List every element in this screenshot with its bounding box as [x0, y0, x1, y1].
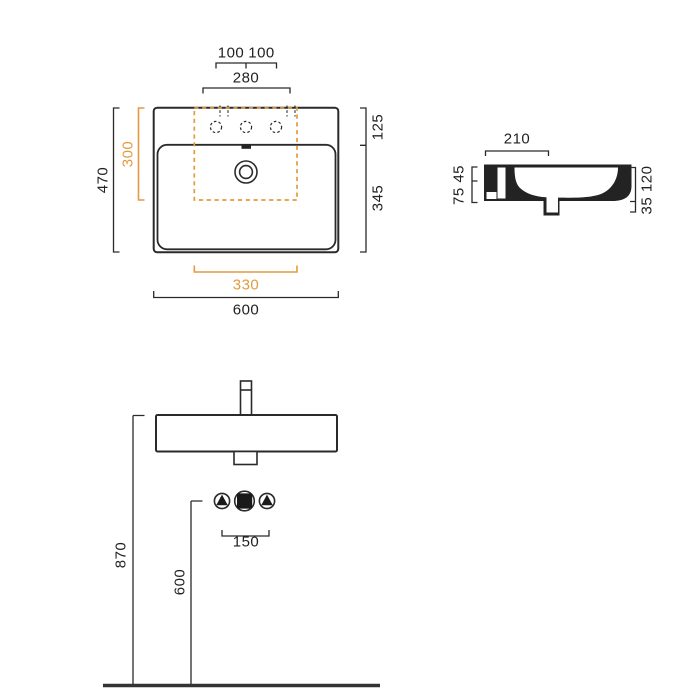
front-drain-stub	[234, 452, 257, 465]
drawing-linework	[0, 0, 700, 700]
dim-tap-hole-left-offset: 100	[218, 46, 245, 61]
dim-overall-width: 600	[233, 303, 260, 318]
dim-connection-spacing: 150	[233, 535, 260, 550]
dim-cutout-depth: 300	[121, 141, 136, 168]
side-profile	[484, 165, 632, 216]
plan-outer-rect	[154, 108, 339, 253]
front-faucet	[241, 381, 252, 415]
dim-rim-height: 870	[114, 542, 129, 569]
plan-view	[114, 63, 367, 298]
technical-drawing-canvas: 100 100 280 470 300 125 345 330 600 210 …	[0, 0, 700, 700]
side-view	[472, 151, 636, 216]
dim-ledge-width: 210	[504, 132, 531, 147]
drain-connection-icon	[235, 491, 255, 511]
front-basin	[156, 415, 337, 452]
dim-rim-depth: 125	[371, 114, 386, 141]
connection-symbols	[214, 491, 274, 511]
dim-tap-hole-span: 280	[233, 71, 260, 86]
plan-overflow-slot	[242, 145, 252, 149]
dim-rear-heights: 75 45	[452, 165, 467, 205]
dim-tap-hole-right-offset: 100	[248, 46, 275, 61]
dim-cutout-width: 330	[233, 278, 260, 293]
water-connection-icon-right	[259, 493, 274, 508]
dim-overall-depth: 470	[96, 167, 111, 194]
dim-front-heights: 35 120	[640, 166, 655, 215]
dim-basin-depth: 345	[371, 185, 386, 212]
dim-connection-height: 600	[173, 569, 188, 596]
water-connection-icon-left	[214, 493, 229, 508]
